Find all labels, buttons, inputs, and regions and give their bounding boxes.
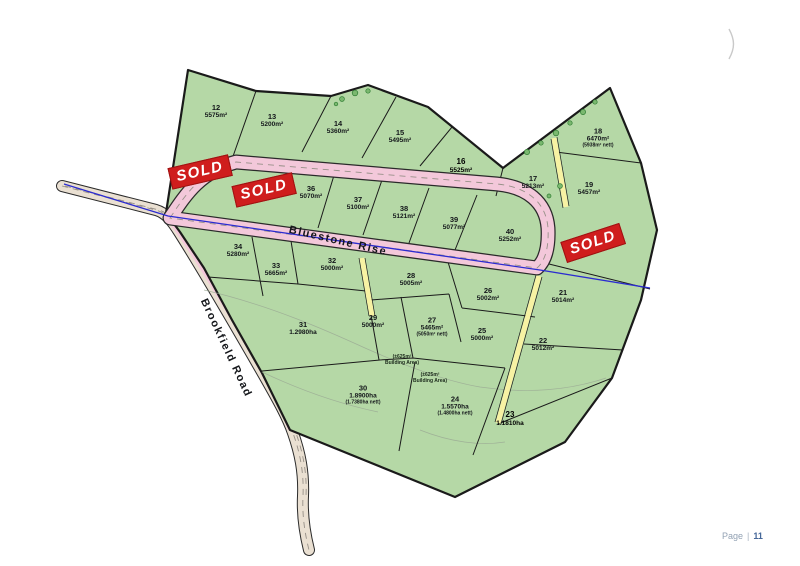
lot-label: 335665m² [265,262,287,278]
lot-label: 241.5570ha(1.4800ha nett) [437,395,472,416]
lot-label: 345280m² [227,243,249,259]
page-footer: Page|11 [722,531,763,541]
building-area-note: (±625m² Building Area) [411,372,449,385]
road-label-brookfield-road: Brookfield Road [198,297,254,399]
lot-label: 155495m² [389,129,411,145]
lot-label: 135200m² [261,113,283,129]
sold-stamp: SOLD [167,154,232,189]
road-label-bluestone-rise: Bluestone Rise [288,224,389,258]
lot-label: 275465m²(5050m² nett) [416,316,447,337]
lot-label: 165525m² [450,158,472,174]
lot-label: 325000m² [321,257,343,273]
footer-separator: | [747,531,749,541]
lot-label: 231.1810ha [496,411,523,427]
lot-label: 225012m² [532,337,554,353]
lot-label: 301.8900ha(1.7380ha nett) [345,384,380,405]
labels-layer: Bluestone Rise Brookfield Road Page|11 1… [0,0,800,566]
lot-label: 125575m² [205,104,227,120]
lot-label: 145360m² [327,120,349,136]
footer-page-number: 11 [753,531,763,541]
lot-label: 186470m²(5938m² nett) [582,127,613,148]
lot-label: 215014m² [552,289,574,305]
sold-stamp: SOLD [231,172,296,207]
lot-label: 405252m² [499,228,521,244]
sold-stamp: SOLD [560,223,625,263]
lot-label: 255000m² [471,327,493,343]
footer-prefix: Page [722,531,743,541]
lot-label: 175213m² [522,175,544,191]
subdivision-plan-page: Bluestone Rise Brookfield Road Page|11 1… [0,0,800,566]
lot-label: 265002m² [477,287,499,303]
lot-label: 385121m² [393,205,415,221]
lot-label: 311.2980ha [289,321,316,337]
lot-label: 295000m² [362,314,384,330]
lot-label: 285005m² [400,272,422,288]
lot-label: 395077m² [443,216,465,232]
lot-label: 195457m² [578,181,600,197]
lot-label: 365070m² [300,185,322,201]
lot-label: 375100m² [347,196,369,212]
building-area-note: (±625m² Building Area) [383,354,421,367]
